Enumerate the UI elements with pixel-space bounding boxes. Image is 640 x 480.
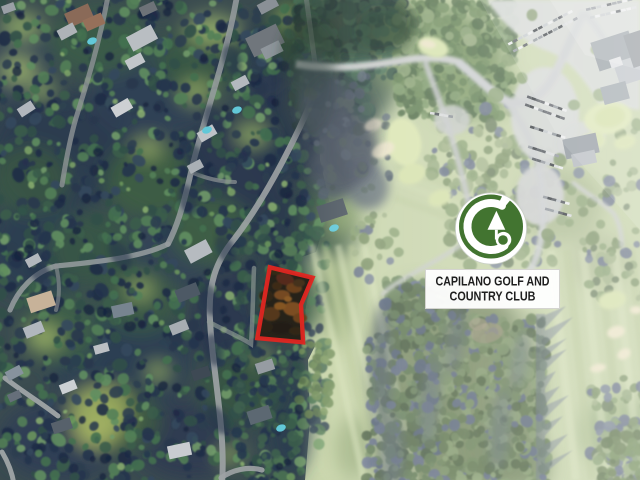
svg-text:COUNTRY CLUB: COUNTRY CLUB (450, 289, 536, 304)
svg-text:CAPILANO GOLF AND: CAPILANO GOLF AND (436, 274, 550, 289)
